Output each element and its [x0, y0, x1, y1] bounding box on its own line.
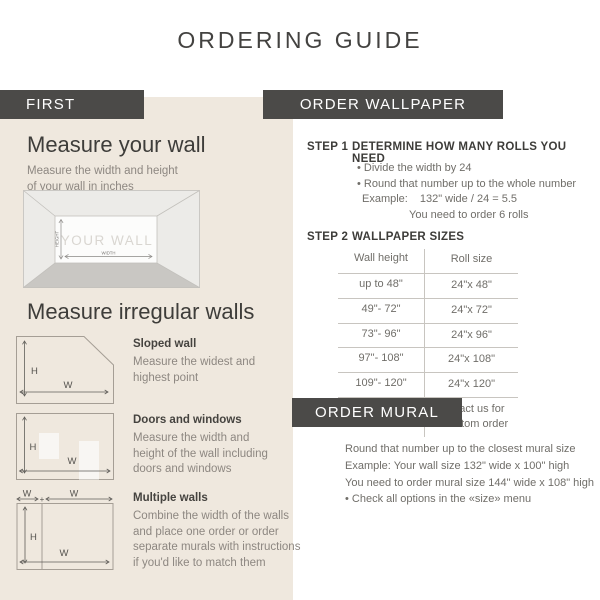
doors-windows-diagram: H W: [16, 413, 114, 480]
sloped-w-label: W: [64, 380, 73, 391]
sloped-height-arrow: [23, 341, 27, 396]
table-row: 97"- 108" 24"x 108": [338, 348, 518, 373]
table-header-row: Wall height Roll size: [338, 249, 518, 274]
mural-line-3: You need to order mural size 144" wide x…: [345, 475, 594, 492]
sloped-h-label: H: [31, 366, 38, 377]
cell-wall-height: 109"- 120": [338, 373, 425, 397]
order-mural-label: ORDER MURAL: [315, 404, 439, 421]
table-row: 73"- 96" 24"x 96": [338, 324, 518, 349]
sloped-wall-item: Sloped wall Measure the widest and highe…: [133, 338, 291, 386]
doors-windows-title: Doors and windows: [133, 414, 295, 426]
cell-wall-height: 73"- 96": [338, 324, 425, 348]
doors-h-label: H: [30, 442, 37, 453]
multi-h-label: H: [30, 532, 37, 543]
page-title: ORDERING GUIDE: [0, 27, 600, 54]
ordering-guide-page: ORDERING GUIDE FIRST ORDER WALLPAPER ORD…: [0, 0, 600, 600]
irregular-walls-heading: Measure irregular walls: [27, 299, 254, 325]
height-label: HEIGHT: [55, 231, 60, 248]
table-row: 109"- 120" 24"x 120": [338, 373, 518, 398]
mural-line-4: • Check all options in the «size» menu: [345, 491, 594, 508]
cell-roll-size: 24"x 48": [425, 274, 518, 298]
measure-wall-heading: Measure your wall: [27, 132, 206, 158]
step1-label: STEP 1: [307, 141, 348, 153]
step1-bullet-2: • Round that number up to the whole numb…: [357, 176, 576, 192]
step2-label: STEP 2: [307, 231, 348, 243]
step1-bullets: • Divide the width by 24 • Round that nu…: [357, 160, 576, 192]
room-perspective-diagram: YOUR WALL HEIGHT WIDTH: [23, 190, 200, 288]
doors-w-label: W: [68, 456, 77, 467]
multi-w1-label: W: [23, 490, 32, 499]
step1-example: Example: 132" wide / 24 = 5.5: [362, 193, 517, 205]
top-width-arrows: [17, 497, 112, 501]
mural-line-2: Example: Your wall size 132" wide x 100"…: [345, 458, 594, 475]
multi-plus-label: +: [40, 495, 45, 504]
table-row: up to 48" 24"x 48": [338, 274, 518, 299]
example-label: Example:: [362, 193, 408, 205]
cell-roll-size: 24"x 120": [425, 373, 518, 397]
step1-bullet-1: • Divide the width by 24: [357, 160, 576, 176]
multiple-walls-title: Multiple walls: [133, 492, 311, 504]
cell-roll-size: 24"x 108": [425, 348, 518, 372]
first-section-header: FIRST: [0, 90, 144, 119]
example-value: 132" wide / 24 = 5.5: [420, 193, 517, 205]
multi-height-arrow: [23, 507, 27, 563]
cell-roll-size: 24"x 96": [425, 324, 518, 348]
sloped-wall-desc: Measure the widest and highest point: [133, 355, 291, 386]
multiple-walls-desc: Combine the width of the walls and place…: [133, 509, 311, 571]
cell-roll-size: 24"x 72": [425, 299, 518, 323]
sloped-wall-title: Sloped wall: [133, 338, 291, 350]
step2-heading: WALLPAPER SIZES: [352, 231, 464, 243]
cell-wall-height: up to 48": [338, 274, 425, 298]
window-shape: [39, 433, 59, 459]
mural-line-1: Round that number up to the closest mura…: [345, 441, 594, 458]
order-mural-text: Round that number up to the closest mura…: [345, 441, 594, 508]
order-mural-section-header: ORDER MURAL: [292, 398, 462, 427]
doors-windows-desc: Measure the width and height of the wall…: [133, 431, 295, 478]
sloped-wall-diagram: H W: [16, 336, 114, 404]
cell-wall-height: 49"- 72": [338, 299, 425, 323]
door-shape: [79, 441, 99, 480]
order-wallpaper-label: ORDER WALLPAPER: [300, 96, 466, 113]
multi-w-bottom-label: W: [60, 548, 69, 559]
example-result: You need to order 6 rolls: [409, 209, 528, 221]
order-wallpaper-section-header: ORDER WALLPAPER: [263, 90, 503, 119]
doors-height-arrow: [23, 417, 27, 473]
width-label: WIDTH: [101, 251, 115, 256]
multi-width-arrow: [20, 560, 109, 564]
col-header-roll-size: Roll size: [425, 249, 518, 273]
cell-wall-height: 97"- 108": [338, 348, 425, 372]
doors-windows-item: Doors and windows Measure the width and …: [133, 414, 295, 478]
table-row: 49"- 72" 24"x 72": [338, 299, 518, 324]
multiple-walls-item: Multiple walls Combine the width of the …: [133, 492, 311, 571]
col-header-wall-height: Wall height: [338, 249, 425, 273]
multi-w2-label: W: [70, 490, 79, 499]
multiple-walls-diagram: W + W H W: [16, 490, 114, 572]
first-section-label: FIRST: [26, 96, 75, 113]
your-wall-watermark: YOUR WALL: [61, 233, 154, 248]
